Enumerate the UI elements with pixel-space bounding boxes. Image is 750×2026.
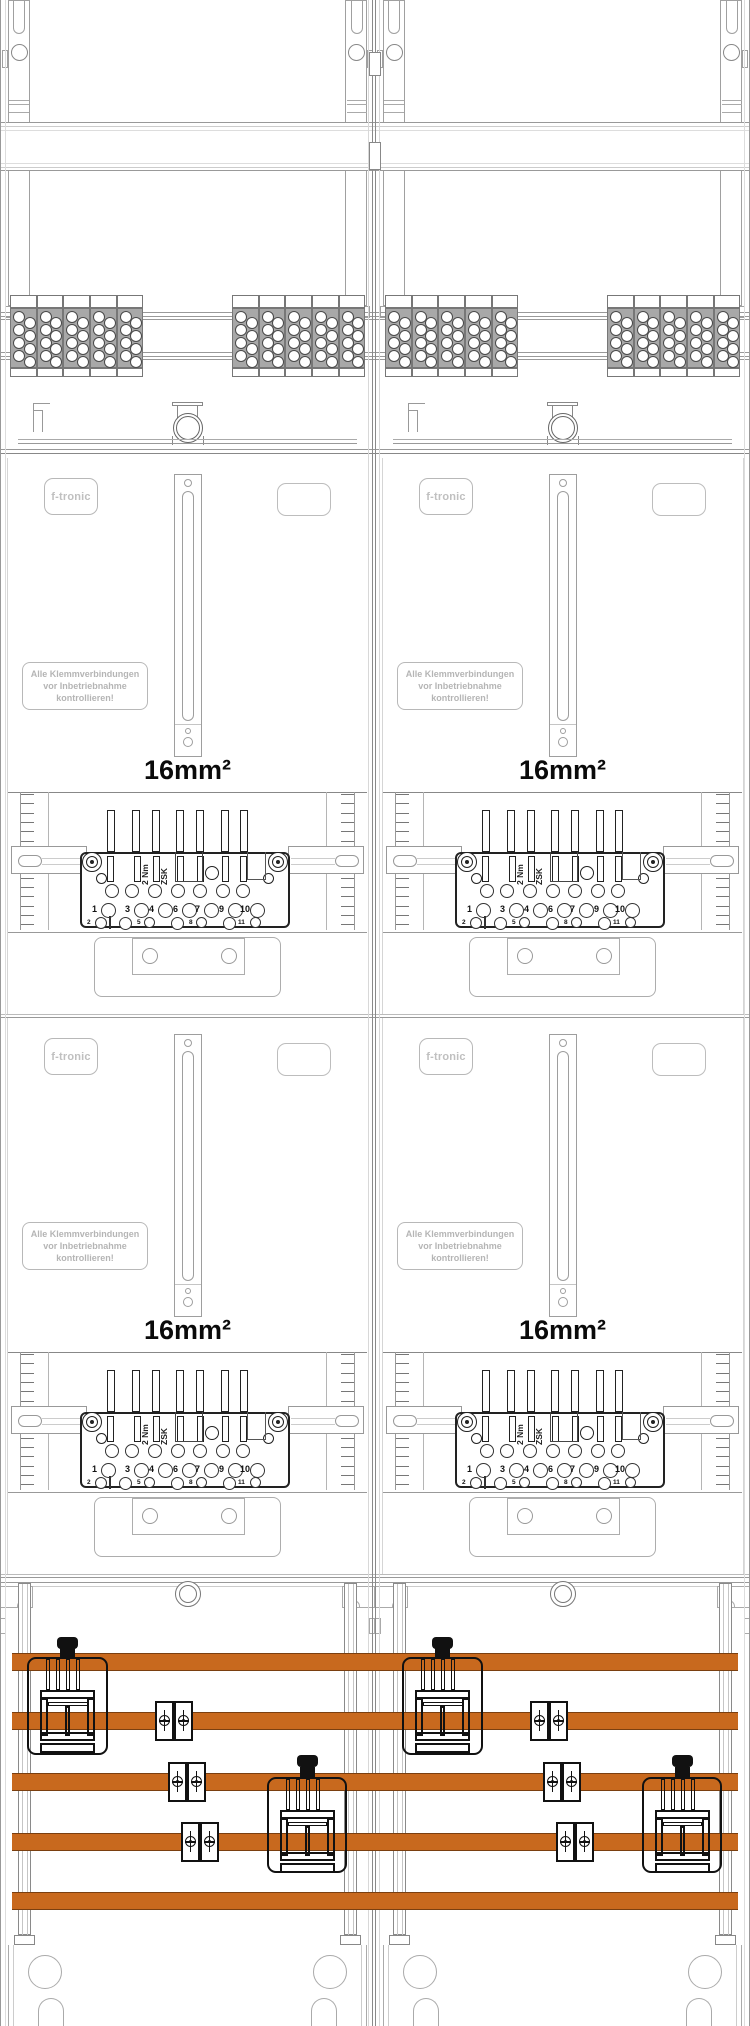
link-line: [518, 316, 607, 317]
terminal-hole: [479, 317, 491, 329]
rail-foot: [715, 1935, 736, 1945]
busbar: [12, 1892, 738, 1910]
busbar-rail-right: [719, 1583, 732, 1935]
zsk-hole: [250, 917, 261, 928]
link-line: [518, 356, 607, 357]
zsk-hole: [579, 903, 594, 918]
terminal-block: [339, 295, 366, 377]
zsk-hole: [611, 884, 625, 898]
zsk-contact-finger: [527, 810, 535, 852]
terminal-hole: [50, 317, 62, 329]
zsk-number: 3: [500, 904, 505, 914]
zsk-contact-finger: [221, 1370, 229, 1412]
terminal-hole: [452, 317, 464, 329]
zsk-hole: [625, 903, 640, 918]
zsk-contact-finger: [132, 1370, 140, 1412]
block-body: [37, 308, 64, 368]
block-body: [285, 308, 312, 368]
zsk-hole: [144, 1477, 155, 1488]
zsk-hole: [125, 1444, 139, 1458]
zsk-contact-finger: [615, 1370, 623, 1412]
terminal-hole: [326, 317, 338, 329]
rail-notch: [13, 0, 25, 34]
zsk-number: 7: [195, 904, 200, 914]
zsk-contact-finger: [240, 810, 248, 852]
zsk-hole: [509, 1463, 524, 1478]
link-line: [365, 312, 375, 313]
terminal-block: [63, 295, 90, 377]
terminal-hole: [130, 330, 142, 342]
zsk-hole: [105, 884, 119, 898]
zsk-hole: [533, 903, 548, 918]
link-line: [365, 316, 375, 317]
rail-foot: [340, 1935, 361, 1945]
zsk-small-screw: [96, 1433, 107, 1444]
zsk-center-plate: [550, 852, 578, 882]
link-line: [143, 356, 232, 357]
zsk-hole: [204, 903, 219, 918]
meter-terminal-zsk: 2 Nm ZSK 13467910 25811: [375, 1018, 750, 1578]
terminal-block: [37, 295, 64, 377]
terminal-block-group: [607, 295, 741, 377]
zsk-number-small: 11: [238, 919, 245, 926]
zsk-contact-finger: [551, 1370, 559, 1412]
zsk-center-plate: [175, 1412, 203, 1442]
zsk-hole: [523, 884, 537, 898]
terminal-hole: [352, 356, 364, 368]
zsk-hole: [144, 917, 155, 928]
terminal-block-group: [385, 295, 519, 377]
zsk-hole: [250, 1463, 265, 1478]
terminal-block: [10, 295, 37, 377]
block-body: [412, 308, 439, 368]
mounting-notch: [311, 1998, 337, 2026]
zsk-contact-finger: [551, 810, 559, 852]
busbar-clamp: [168, 1762, 187, 1802]
block-flange: [660, 368, 687, 377]
block-flange: [232, 368, 259, 377]
block-body: [339, 308, 366, 368]
zsk-hole: [470, 917, 482, 929]
zsk-contact-finger: [107, 1370, 115, 1412]
terminal-hole: [130, 356, 142, 368]
terminal-hole: [674, 356, 686, 368]
busbar: [12, 1773, 738, 1791]
zsk-number-small: 5: [512, 1479, 516, 1486]
terminal-hole: [352, 343, 364, 355]
block-body: [634, 308, 661, 368]
busbar-clamp: [181, 1822, 200, 1862]
block-flange: [90, 368, 117, 377]
zsk-hole: [171, 917, 184, 930]
terminal-hole: [621, 356, 633, 368]
terminal-hole: [272, 343, 284, 355]
link-line: [143, 319, 232, 320]
zsk-hole: [148, 884, 162, 898]
zsk-contact-finger: [221, 810, 229, 852]
terminal-block: [90, 295, 117, 377]
zsk-hole: [625, 1477, 636, 1488]
terminal-hole: [326, 330, 338, 342]
zsk-hole: [470, 1477, 482, 1489]
link-line: [375, 316, 385, 317]
block-flange: [312, 368, 339, 377]
zsk-number: 6: [173, 904, 178, 914]
rail-notch: [351, 0, 363, 34]
terminal-hole: [352, 317, 364, 329]
cable-entry-hole: [550, 1581, 576, 1607]
meter-field: f-tronic Alle Klemmverbindungen vor Inbe…: [0, 1018, 375, 1578]
zsk-hole: [250, 903, 265, 918]
zsk-contact-finger: [482, 810, 490, 852]
zsk-hole: [546, 1444, 560, 1458]
zsk-contact-finger: [482, 1370, 490, 1412]
terminal-block: [232, 295, 259, 377]
terminal-hole: [130, 343, 142, 355]
zsk-contact-finger: [240, 1370, 248, 1412]
link-line: [365, 356, 375, 357]
zsk-open-hole: [205, 866, 219, 880]
terminal-hole: [24, 317, 36, 329]
link-line: [365, 359, 375, 360]
zsk-number: 9: [594, 1464, 599, 1474]
zsk-hole: [236, 1444, 250, 1458]
seam-connector: [369, 142, 381, 170]
terminal-hole: [701, 317, 713, 329]
zsk-hole: [546, 917, 559, 930]
block-header: [714, 295, 741, 308]
zsk-contact-finger: [107, 810, 115, 852]
terminal-block: [492, 295, 519, 377]
mounting-notch: [38, 1998, 64, 2026]
zsk-contact-finger: [152, 1370, 160, 1412]
meter-field: f-tronic Alle Klemmverbindungen vor Inbe…: [375, 1018, 750, 1578]
link-line: [518, 319, 607, 320]
block-flange: [492, 368, 519, 377]
block-body: [63, 308, 90, 368]
terminal-hole: [104, 343, 116, 355]
terminal-hole: [425, 343, 437, 355]
block-body: [607, 308, 634, 368]
zsk-hole: [216, 1444, 230, 1458]
terminal-hole: [352, 330, 364, 342]
link-line: [518, 352, 607, 353]
block-flange: [259, 368, 286, 377]
terminal-hole: [452, 330, 464, 342]
block-body: [385, 308, 412, 368]
link-line: [518, 312, 607, 313]
zsk-number: 4: [524, 904, 529, 914]
terminal-block: [660, 295, 687, 377]
zsk-hole: [546, 884, 560, 898]
zsk-number-small: 8: [564, 919, 568, 926]
zsk-right-plate: [247, 1412, 266, 1440]
block-flange: [37, 368, 64, 377]
meter-cabinet-drawing: f-tronic Alle Klemmverbindungen vor Inbe…: [0, 0, 750, 2026]
block-header: [117, 295, 144, 308]
zsk-number: 10: [615, 904, 625, 914]
terminal-block-group: [10, 295, 144, 377]
block-flange: [438, 368, 465, 377]
zsk-hole: [171, 1477, 184, 1490]
zsk-torque-label: 2 Nm: [141, 855, 153, 885]
terminal-hole: [701, 343, 713, 355]
busbar-rail-right: [344, 1583, 357, 1935]
terminal-hole: [50, 330, 62, 342]
zsk-number: 7: [570, 1464, 575, 1474]
terminal-hole: [479, 343, 491, 355]
busbar-compartment: [0, 1578, 375, 2026]
block-header: [312, 295, 339, 308]
zsk-number: 1: [467, 1464, 472, 1474]
zsk-number: 7: [570, 904, 575, 914]
zsk-contact-finger: [507, 1370, 515, 1412]
busbar-clamp: [530, 1701, 549, 1741]
zsk-number-small: 11: [613, 919, 620, 926]
terminal-block: [412, 295, 439, 377]
zsk-hole: [625, 917, 636, 928]
zsk-number: 3: [125, 904, 130, 914]
terminal-hole: [272, 330, 284, 342]
rail-foot: [389, 1935, 410, 1945]
terminal-hole: [727, 317, 739, 329]
terminal-hole: [272, 317, 284, 329]
terminal-hole: [272, 356, 284, 368]
zsk-contact-finger: [132, 810, 140, 852]
terminal-hole: [77, 343, 89, 355]
zsk-number: 4: [149, 904, 154, 914]
block-header: [634, 295, 661, 308]
block-header: [465, 295, 492, 308]
zsk-contact-finger: [507, 810, 515, 852]
block-header: [259, 295, 286, 308]
zsk-center-plate: [550, 1412, 578, 1442]
zsk-hole: [523, 1444, 537, 1458]
busbar-clamp: [187, 1762, 206, 1802]
terminal-hole: [77, 356, 89, 368]
block-header: [37, 295, 64, 308]
zsk-hole: [158, 903, 173, 918]
zsk-hole: [105, 1444, 119, 1458]
block-flange: [465, 368, 492, 377]
zsk-number: 9: [219, 1464, 224, 1474]
zsk-hole: [236, 884, 250, 898]
zsk-small-screw: [471, 1433, 482, 1444]
terminal-hole: [674, 330, 686, 342]
zsk-number: 9: [594, 904, 599, 914]
din-crossbar: [0, 122, 375, 171]
terminal-hole: [246, 343, 258, 355]
zsk-open-hole: [580, 866, 594, 880]
zsk-hole: [193, 1444, 207, 1458]
terminal-hole: [674, 343, 686, 355]
terminal-block: [634, 295, 661, 377]
terminal-hole: [399, 343, 411, 355]
zsk-open-hole: [205, 1426, 219, 1440]
block-flange: [607, 368, 634, 377]
zsk-number: 1: [467, 904, 472, 914]
terminal-hole: [399, 356, 411, 368]
terminal-block: [312, 295, 339, 377]
zsk-right-plate: [247, 852, 266, 880]
busbar-compartment: [375, 1578, 750, 2026]
terminal-hole: [50, 356, 62, 368]
busbar: [12, 1833, 738, 1851]
block-body: [259, 308, 286, 368]
terminal-hole: [647, 317, 659, 329]
block-body: [687, 308, 714, 368]
zsk-number: 10: [615, 1464, 625, 1474]
terminal-hole: [130, 317, 142, 329]
terminal-hole: [701, 356, 713, 368]
zsk-number: 1: [92, 1464, 97, 1474]
zsk-hole: [494, 917, 507, 930]
zsk-contact-finger: [596, 1370, 604, 1412]
terminal-hole: [674, 317, 686, 329]
terminal-hole: [647, 330, 659, 342]
zsk-hole: [119, 917, 132, 930]
terminal-hole: [425, 356, 437, 368]
link-line: [143, 316, 232, 317]
terminal-hole: [24, 356, 36, 368]
link-line: [375, 312, 385, 313]
block-body: [660, 308, 687, 368]
terminal-hole: [77, 317, 89, 329]
zsk-type-label: ZSK: [160, 855, 172, 885]
zsk-right-plate: [622, 1412, 641, 1440]
terminal-block: [687, 295, 714, 377]
link-line: [375, 359, 385, 360]
zsk-contact-finger: [615, 810, 623, 852]
meter-terminal-zsk: 2 Nm ZSK 13467910 25811: [0, 458, 375, 1018]
terminal-hole: [299, 330, 311, 342]
terminal-hole: [326, 343, 338, 355]
mounting-hole: [403, 1955, 437, 1989]
terminal-hole: [77, 330, 89, 342]
zsk-number: 9: [219, 904, 224, 914]
terminal-hole: [621, 317, 633, 329]
block-flange: [714, 368, 741, 377]
terminal-hole: [727, 330, 739, 342]
zsk-hole: [500, 884, 514, 898]
zsk-number: 6: [548, 1464, 553, 1474]
zsk-number-small: 8: [564, 1479, 568, 1486]
block-body: [312, 308, 339, 368]
zsk-hole: [480, 1444, 494, 1458]
terminal-hole: [647, 343, 659, 355]
zsk-hole: [216, 884, 230, 898]
rail-notch: [388, 0, 400, 34]
link-line: [375, 356, 385, 357]
zsk-hole: [171, 1444, 185, 1458]
rail-hole: [348, 44, 365, 61]
terminal-hole: [727, 343, 739, 355]
terminal-top-section: [0, 0, 375, 458]
zsk-number-small: 11: [238, 1479, 245, 1486]
terminal-hole: [326, 356, 338, 368]
mounting-bracket-step: [33, 410, 43, 432]
rail-hole: [723, 44, 740, 61]
busbar-clamp: [174, 1701, 193, 1741]
zsk-hole: [171, 884, 185, 898]
terminal-hole: [479, 356, 491, 368]
terminal-bolt: [297, 1755, 318, 1767]
zsk-contact-finger: [527, 1370, 535, 1412]
zsk-slot: [107, 856, 114, 882]
link-line: [143, 312, 232, 313]
zsk-type-label: ZSK: [535, 1415, 547, 1445]
terminal-block: [465, 295, 492, 377]
zsk-hole: [134, 903, 149, 918]
link-line: [143, 352, 232, 353]
terminal-hole: [505, 343, 517, 355]
zsk-hole: [193, 884, 207, 898]
terminal-block: [385, 295, 412, 377]
block-flange: [10, 368, 37, 377]
zsk-hole: [500, 1444, 514, 1458]
block-body: [438, 308, 465, 368]
rail-foot: [14, 1935, 35, 1945]
terminal-hole: [50, 343, 62, 355]
terminal-hole: [505, 330, 517, 342]
zsk-hole: [95, 1477, 107, 1489]
zsk-hole: [119, 1477, 132, 1490]
zsk-hole: [591, 1444, 605, 1458]
block-header: [10, 295, 37, 308]
zsk-number: 10: [240, 904, 250, 914]
zsk-hole: [494, 1477, 507, 1490]
terminal-block: [714, 295, 741, 377]
zsk-hole: [223, 917, 236, 930]
zsk-hole: [509, 903, 524, 918]
cable-entry-hole: [175, 1581, 201, 1607]
zsk-slot: [597, 1416, 604, 1442]
block-body: [232, 308, 259, 368]
block-body: [492, 308, 519, 368]
zsk-hole: [223, 1477, 236, 1490]
block-header: [63, 295, 90, 308]
zsk-number: 10: [240, 1464, 250, 1474]
busbar-clamp: [556, 1822, 575, 1862]
meter-terminal-zsk: 2 Nm ZSK 13467910 25811: [0, 1018, 375, 1578]
terminal-block: [259, 295, 286, 377]
mounting-hole: [28, 1955, 62, 1989]
rail-hole: [11, 44, 28, 61]
zsk-number: 4: [524, 1464, 529, 1474]
terminal-hole: [299, 317, 311, 329]
busbar-rail-left: [18, 1583, 31, 1935]
block-body: [10, 308, 37, 368]
zsk-right-plate: [622, 852, 641, 880]
terminal-hole: [399, 330, 411, 342]
zsk-number: 6: [173, 1464, 178, 1474]
zsk-hole: [196, 1477, 207, 1488]
terminal-hole: [505, 356, 517, 368]
zsk-hole: [250, 1477, 261, 1488]
zsk-hole: [125, 884, 139, 898]
busbar-clamp: [200, 1822, 219, 1862]
zsk-hole: [591, 884, 605, 898]
zsk-contact-finger: [596, 810, 604, 852]
terminal-block: [438, 295, 465, 377]
zsk-number: 3: [125, 1464, 130, 1474]
terminal-block: [117, 295, 144, 377]
block-flange: [339, 368, 366, 377]
zsk-small-screw: [96, 873, 107, 884]
terminal-hole: [701, 330, 713, 342]
busbar-clamp: [543, 1762, 562, 1802]
terminal-hole: [399, 317, 411, 329]
